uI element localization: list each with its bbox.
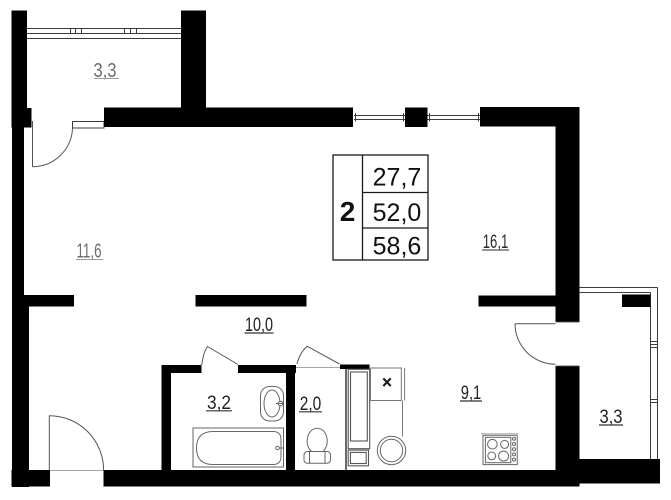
svg-text:58,6: 58,6 (373, 233, 422, 261)
svg-text:52,0: 52,0 (373, 199, 422, 227)
svg-text:2: 2 (340, 196, 356, 227)
svg-text:27,7: 27,7 (373, 164, 422, 192)
